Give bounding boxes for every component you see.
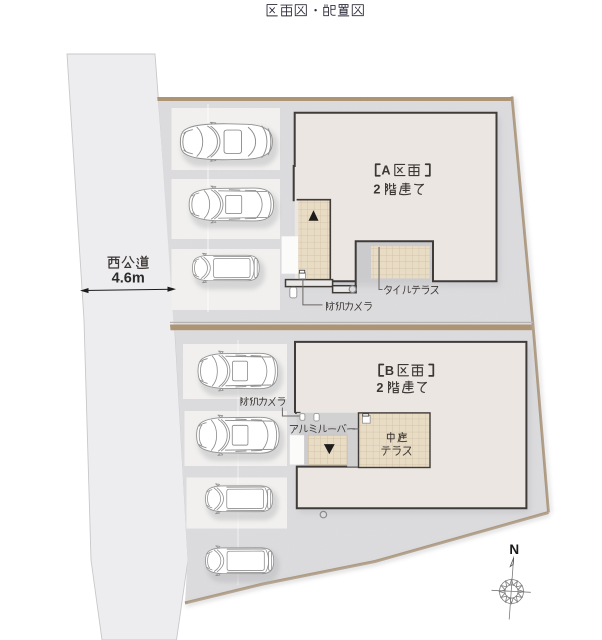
svg-text:2: 2: [376, 381, 383, 395]
svg-text:2: 2: [373, 183, 380, 197]
svg-text:A: A: [381, 164, 390, 178]
svg-text:N: N: [509, 542, 519, 557]
svg-text:B: B: [385, 364, 394, 378]
svg-text:4.6m: 4.6m: [112, 271, 145, 287]
